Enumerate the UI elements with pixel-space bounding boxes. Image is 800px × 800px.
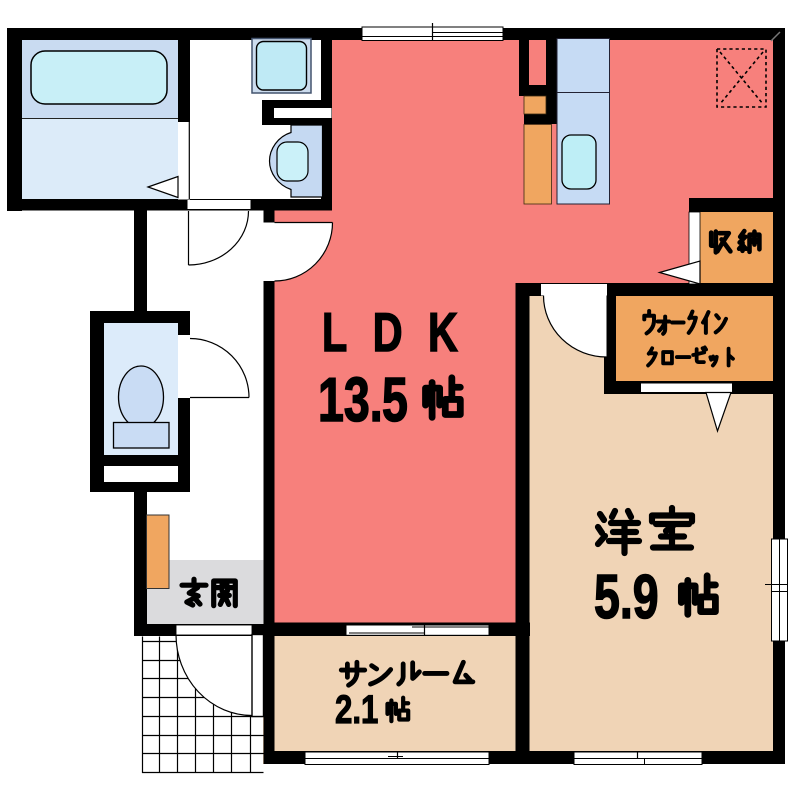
svg-text:LDK: LDK [322,302,483,363]
svg-text:5.9: 5.9 [594,561,659,631]
svg-text:2.1: 2.1 [335,687,378,732]
svg-text:5: 5 [382,364,408,434]
svg-text:13.: 13. [318,364,383,434]
